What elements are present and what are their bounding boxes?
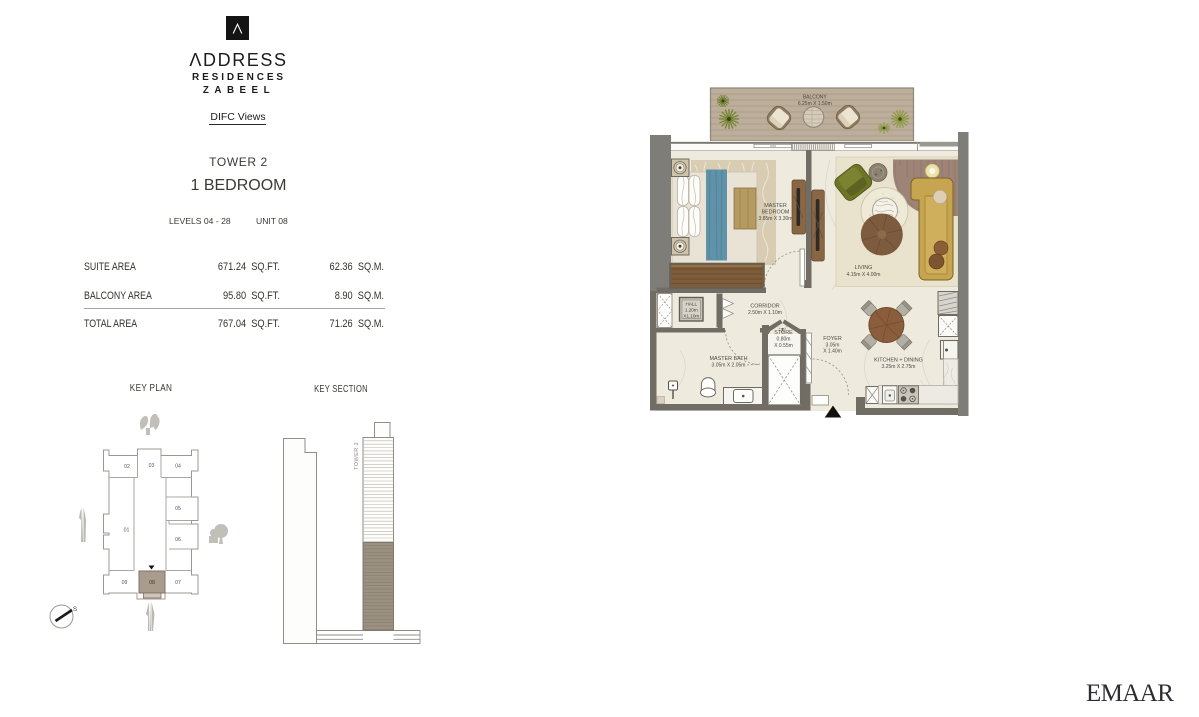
- svg-text:STORE: STORE: [774, 330, 793, 336]
- svg-text:04: 04: [175, 464, 181, 470]
- svg-text:0.80m: 0.80m: [777, 337, 791, 343]
- svg-text:02: 02: [124, 464, 130, 470]
- svg-text:1.20m: 1.20m: [685, 308, 698, 313]
- svg-text:03: 03: [149, 463, 155, 469]
- svg-text:LIVING: LIVING: [855, 265, 873, 271]
- svg-text:2.50m X 1.10m: 2.50m X 1.10m: [748, 310, 782, 316]
- svg-text:X 0.55m: X 0.55m: [774, 343, 793, 349]
- svg-text:HALL: HALL: [686, 302, 698, 307]
- svg-text:3.05m X 2.05m: 3.05m X 2.05m: [712, 363, 746, 369]
- svg-text:TOWER 2: TOWER 2: [354, 442, 360, 470]
- svg-text:3.85m X 3.30m: 3.85m X 3.30m: [759, 216, 793, 222]
- svg-text:08: 08: [149, 580, 155, 586]
- svg-text:09: 09: [122, 580, 128, 586]
- svg-text:MASTER: MASTER: [764, 203, 787, 209]
- svg-text:05: 05: [175, 506, 181, 512]
- svg-text:CORRIDOR: CORRIDOR: [750, 304, 779, 310]
- svg-text:3.05m: 3.05m: [826, 342, 840, 348]
- svg-text:BEDROOM: BEDROOM: [762, 210, 790, 216]
- svg-text:4.15m X 4.00m: 4.15m X 4.00m: [847, 272, 881, 278]
- svg-text:X1.10m: X1.10m: [683, 314, 699, 319]
- svg-text:X 1.40m: X 1.40m: [823, 349, 842, 355]
- svg-text:07: 07: [175, 580, 181, 586]
- svg-text:6.25m X 1.50m: 6.25m X 1.50m: [798, 101, 832, 107]
- svg-text:S: S: [73, 607, 77, 613]
- svg-text:KITCHEN + DINING: KITCHEN + DINING: [874, 358, 923, 364]
- svg-text:01: 01: [124, 528, 130, 534]
- svg-text:06: 06: [175, 537, 181, 543]
- svg-text:BALCONY: BALCONY: [803, 95, 828, 101]
- svg-text:MASTER BATH: MASTER BATH: [710, 356, 748, 362]
- svg-text:3.25m X 2.75m: 3.25m X 2.75m: [882, 364, 916, 370]
- svg-text:FOYER: FOYER: [823, 336, 842, 342]
